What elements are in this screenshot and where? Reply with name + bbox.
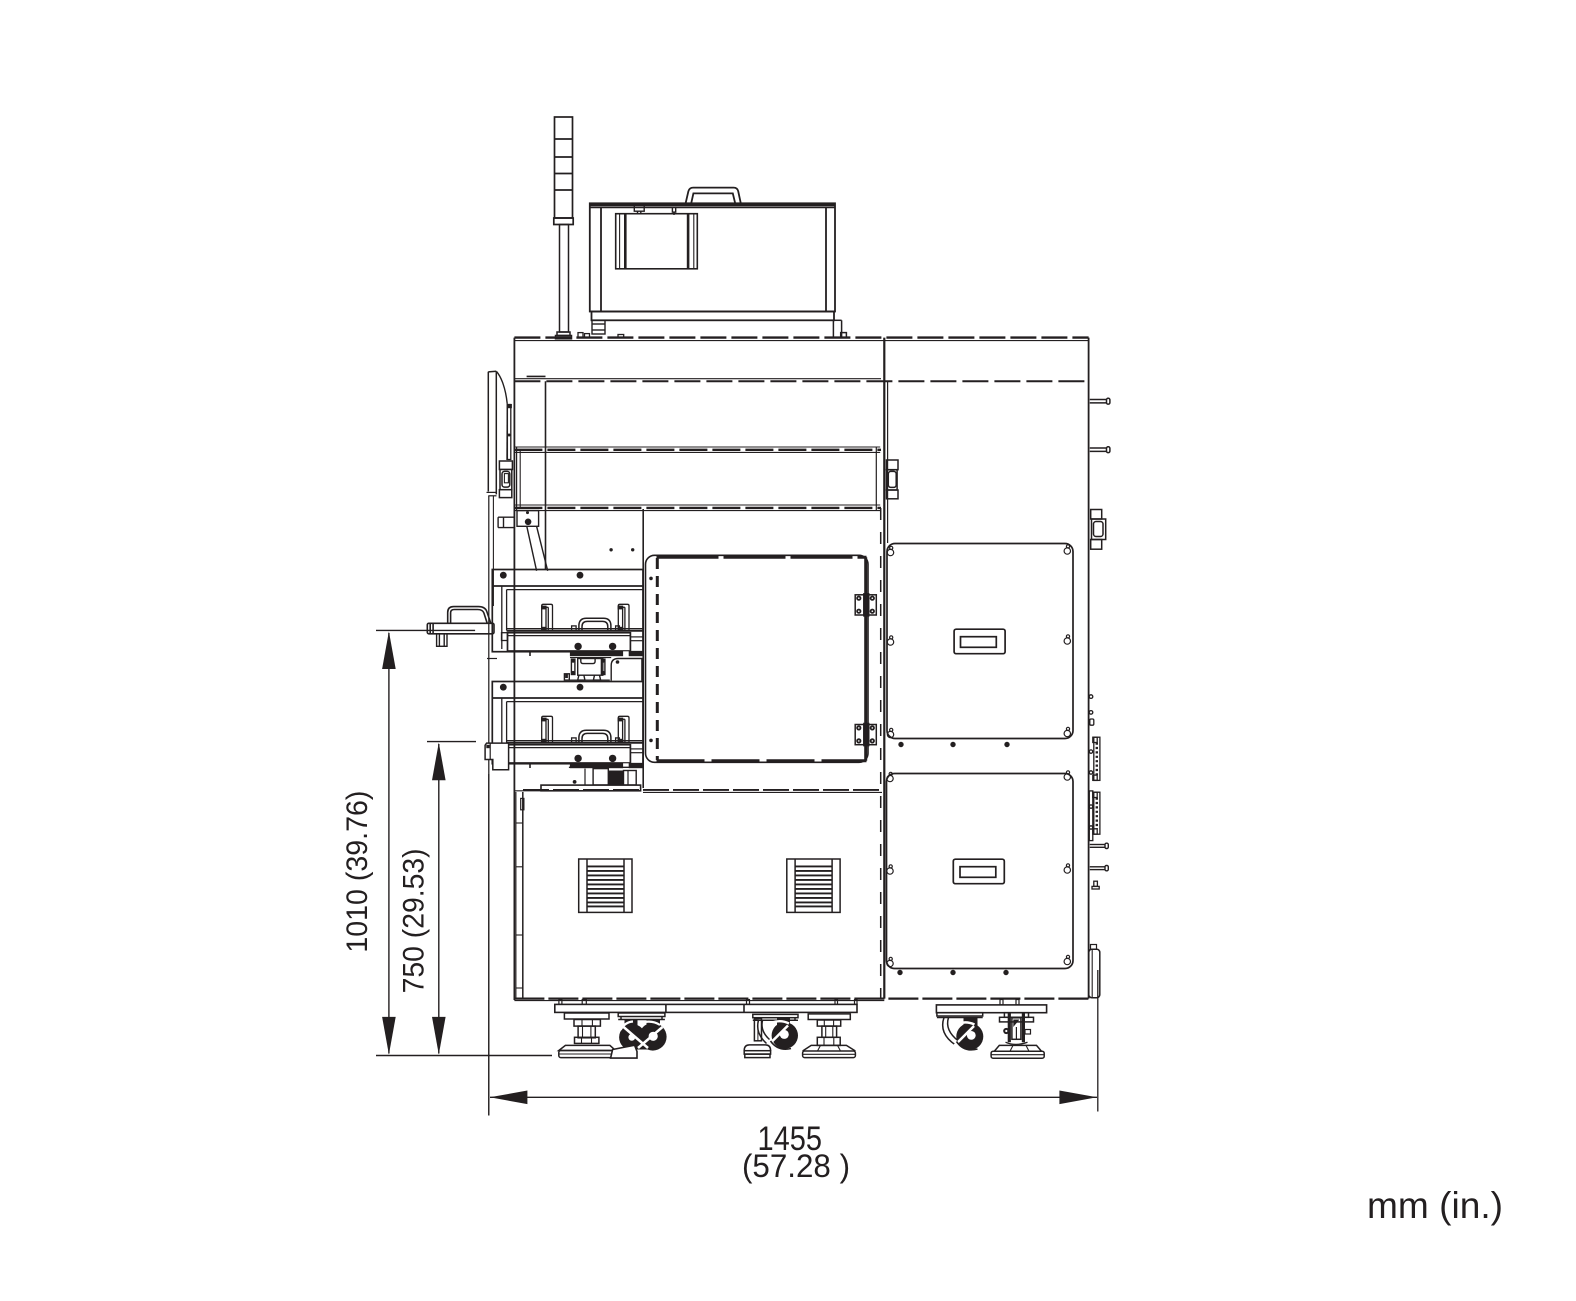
svg-text:(57.28 ): (57.28 ): [742, 1148, 850, 1184]
svg-text:750 (29.53): 750 (29.53): [398, 848, 431, 993]
svg-text:mm (in.): mm (in.): [1367, 1185, 1503, 1226]
svg-text:1010 (39.76): 1010 (39.76): [341, 791, 374, 953]
